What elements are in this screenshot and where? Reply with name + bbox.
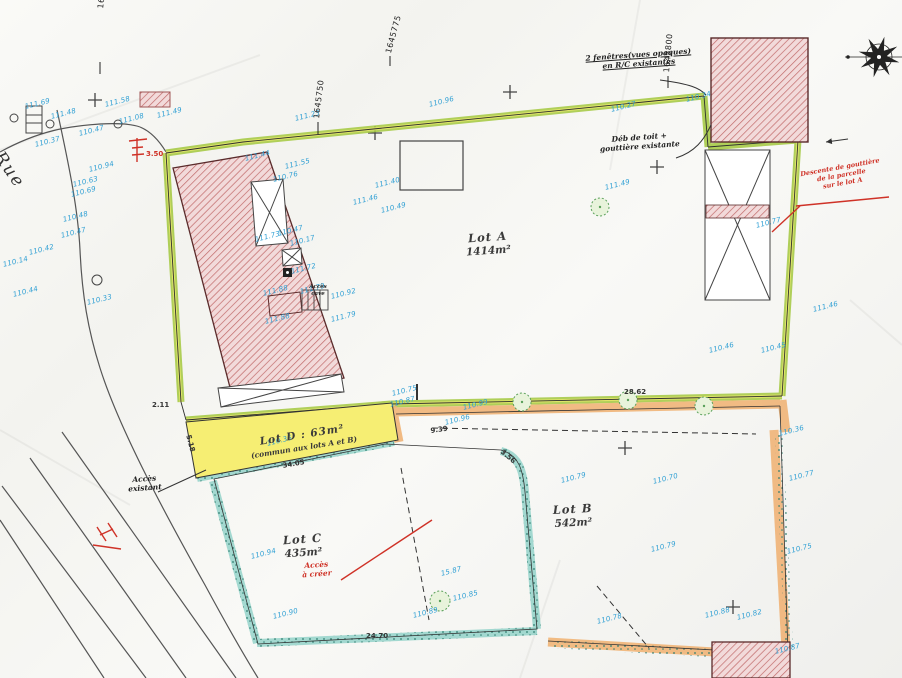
shed [268,292,302,316]
neighbor-building-bottom-right [712,642,790,678]
buildings [173,38,808,678]
garden-building [400,141,463,190]
survey-cross-icons [88,85,740,614]
grid-ticks [100,56,668,134]
hydrant-icon [93,523,121,549]
survey-plan-scan: 111.69111.58111.48111.49111.08110.47110.… [0,0,902,678]
compass-icon [845,37,902,78]
pylon-icon [26,106,42,133]
neighbor-building-top-right [711,38,808,142]
dashed-limits [401,428,756,648]
orange-boundary-bands [392,400,786,656]
manhole-icon [92,275,102,285]
plan-linework [0,0,902,678]
teal-boundary-bands [197,435,789,657]
access-new-leader [341,520,432,580]
